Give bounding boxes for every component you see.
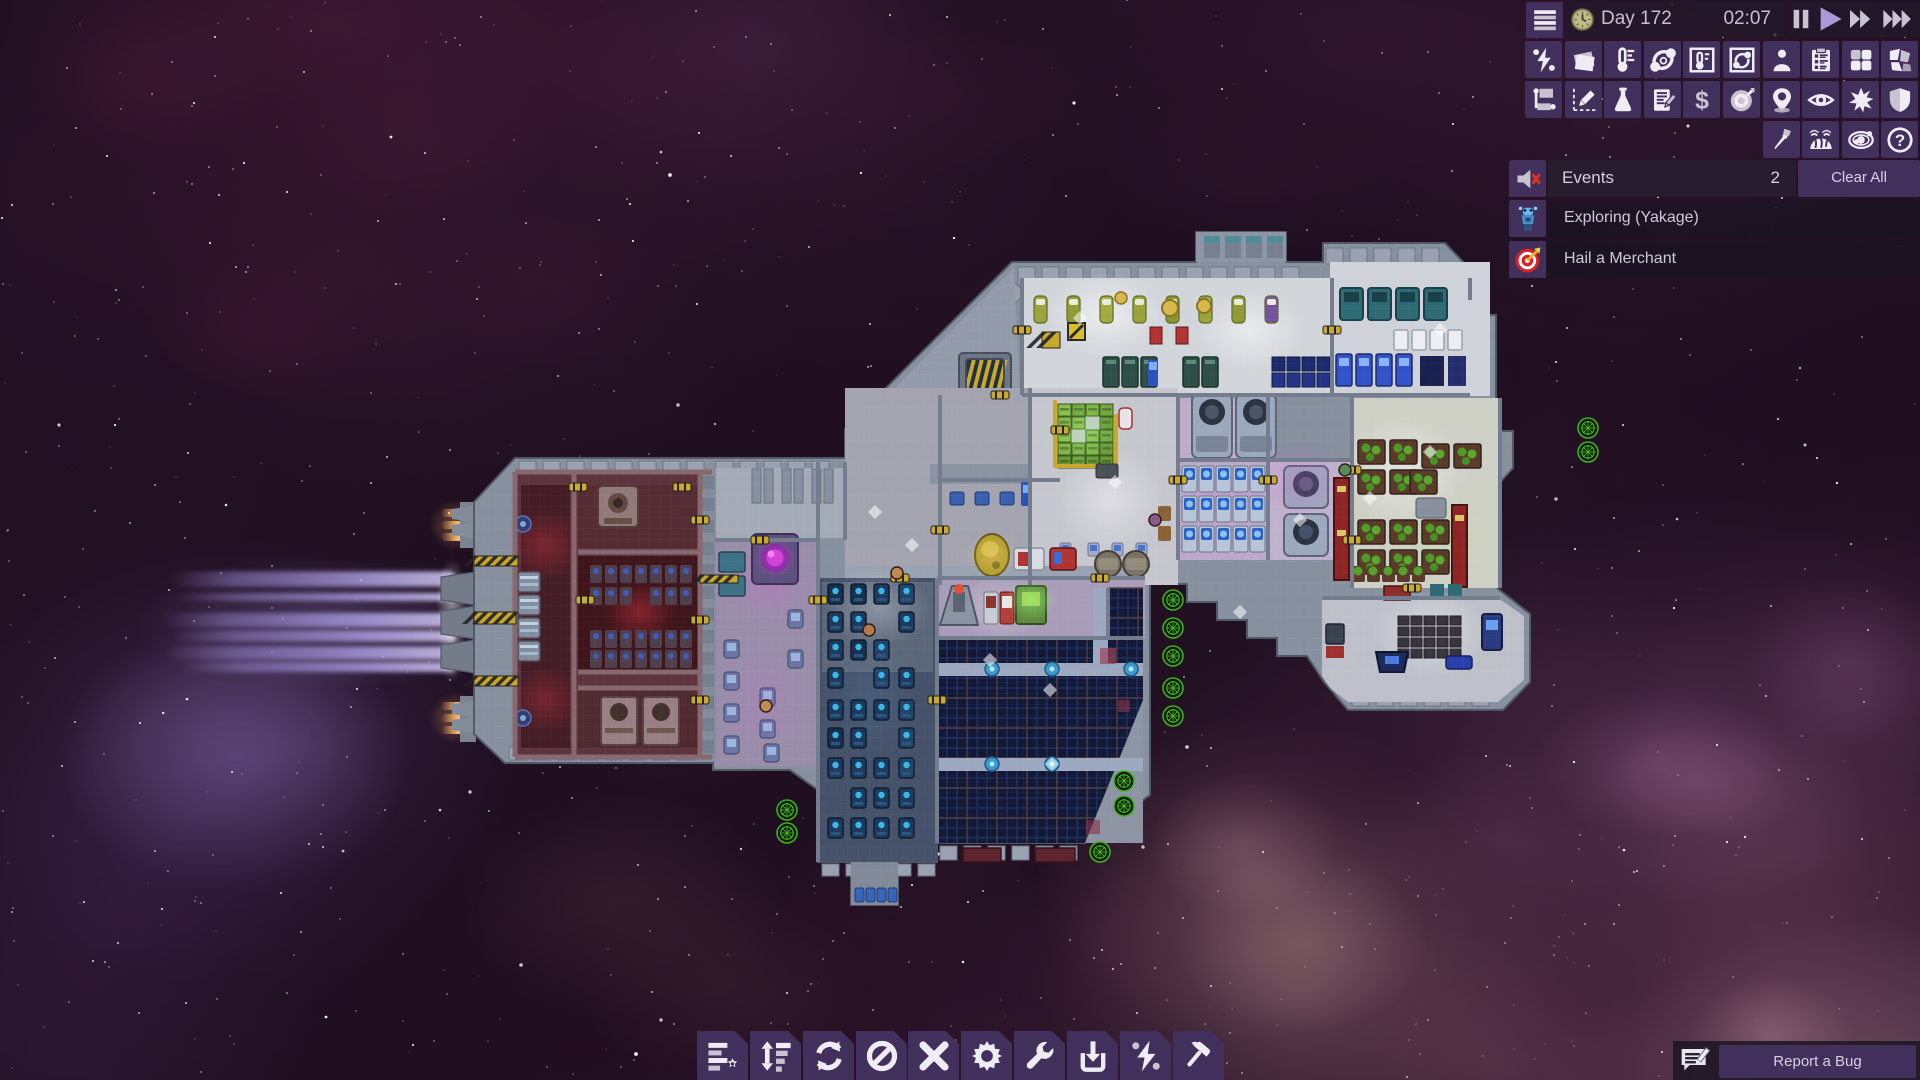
svg-text:$: $ [1695,87,1709,113]
svg-text:?: ? [1894,131,1904,150]
